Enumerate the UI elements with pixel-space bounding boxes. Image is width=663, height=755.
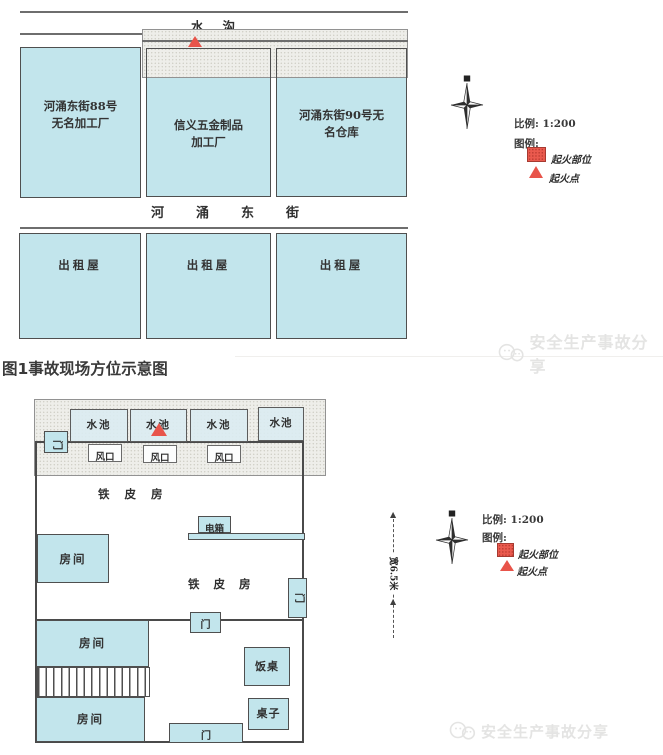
figure-caption: 图1事故现场方位示意图: [2, 357, 168, 379]
building-xinyi-label-1: 信义五金制品: [147, 117, 270, 134]
fire-area-symbol: [527, 147, 546, 162]
electric-box: 电箱: [198, 516, 231, 533]
fire-point-marker: [188, 36, 202, 47]
scale-label-2: 比例: 1:200: [482, 512, 544, 527]
compass-icon: [447, 75, 487, 131]
vent-3-label: 风口: [214, 453, 233, 464]
water-pool-3-label: 水池: [207, 419, 232, 431]
iron-house-label-1: 铁皮房: [98, 486, 178, 502]
dimension-label: 宽6.5米: [387, 554, 402, 594]
door-right: 门: [288, 578, 307, 618]
room-1: 房间: [37, 534, 109, 583]
water-pool-4: 水池: [258, 407, 304, 441]
door-left-label: 门: [46, 440, 66, 450]
building-88: 河涌东街88号 无名加工厂: [20, 47, 141, 198]
room-2: 房间: [36, 620, 149, 667]
fire-point-symbol: [529, 166, 543, 178]
compass-icon-2: [432, 510, 472, 566]
street-bottom-line: [20, 227, 408, 229]
dimension-arrow-bottom: ▲: [390, 598, 396, 606]
watermark-top-text: 安全生产事故分享: [529, 329, 663, 377]
vent-2: 风口: [143, 445, 177, 463]
rental-house-1-label: 出租屋: [20, 234, 140, 274]
rental-house-3-label: 出租屋: [277, 234, 406, 274]
scale-label: 比例: 1:200: [514, 116, 576, 131]
room-2-label: 房间: [37, 621, 148, 651]
rental-house-2-label: 出租屋: [147, 234, 270, 274]
room-1-label: 房间: [38, 535, 108, 567]
rental-house-1: 出租屋: [19, 233, 141, 339]
iron-house-label-2: 铁皮房: [188, 576, 265, 592]
wechat-icon-2: [448, 720, 476, 742]
table-label: 桌子: [257, 707, 281, 720]
street-label: 河涌东街: [151, 202, 331, 221]
band-inner-line: [142, 40, 408, 42]
building-90-label-2: 名仓库: [277, 124, 406, 141]
fire-point-label: 起火点: [549, 170, 579, 185]
water-pool-3: 水池: [190, 409, 248, 442]
wechat-icon: [497, 342, 524, 364]
stairs: [37, 667, 150, 697]
door-bottom: 门: [169, 723, 243, 743]
fire-area-label-2: 起火部位: [518, 546, 558, 561]
dining-table-label: 饭桌: [255, 660, 279, 673]
vent-1-label: 风口: [95, 452, 114, 463]
door-left: 门: [44, 431, 68, 453]
door-bottom-label: 门: [201, 731, 211, 742]
watermark-bottom-text: 安全生产事故分享: [481, 721, 609, 742]
rental-house-3: 出租屋: [276, 233, 407, 339]
accident-diagram-page: 水沟 河涌东街88号 无名加工厂 信义五金制品 加工厂 河涌东街90号无 名仓库…: [0, 0, 663, 755]
building-90: 河涌东街90号无 名仓库: [276, 48, 407, 197]
water-pool-1: 水池: [70, 409, 128, 442]
vent-1: 风口: [88, 444, 122, 462]
watermark-bottom: 安全生产事故分享: [448, 720, 609, 742]
dining-table: 饭桌: [244, 647, 290, 686]
ditch-top-line: [20, 11, 408, 13]
door-middle-label: 门: [201, 620, 211, 631]
rental-house-2: 出租屋: [146, 233, 271, 339]
water-pool-4-label: 水池: [270, 417, 293, 429]
building-xinyi-label-2: 加工厂: [147, 134, 270, 151]
vent-3: 风口: [207, 445, 241, 463]
fire-point-marker-2: [151, 423, 167, 436]
fire-point-symbol-2: [500, 560, 514, 571]
building-88-label-2: 无名加工厂: [21, 115, 140, 132]
building-88-label-1: 河涌东街88号: [21, 98, 140, 115]
door-right-label: 门: [279, 593, 317, 603]
room-3: 房间: [36, 697, 145, 742]
table: 桌子: [248, 698, 289, 730]
building-xinyi: 信义五金制品 加工厂: [146, 48, 271, 197]
counter-bar: [188, 533, 305, 540]
room-3-label: 房间: [37, 698, 144, 727]
fire-area-label: 起火部位: [551, 151, 591, 166]
fire-point-label-2: 起火点: [517, 563, 547, 578]
watermark-top: 安全生产事故分享: [497, 329, 663, 377]
fire-area-symbol-2: [497, 543, 514, 557]
vent-2-label: 风口: [150, 453, 169, 464]
building-90-label-1: 河涌东街90号无: [277, 107, 406, 124]
water-pool-1-label: 水池: [87, 419, 112, 431]
door-middle: 门: [190, 612, 221, 633]
dimension-arrow-top: ▲: [390, 511, 396, 519]
